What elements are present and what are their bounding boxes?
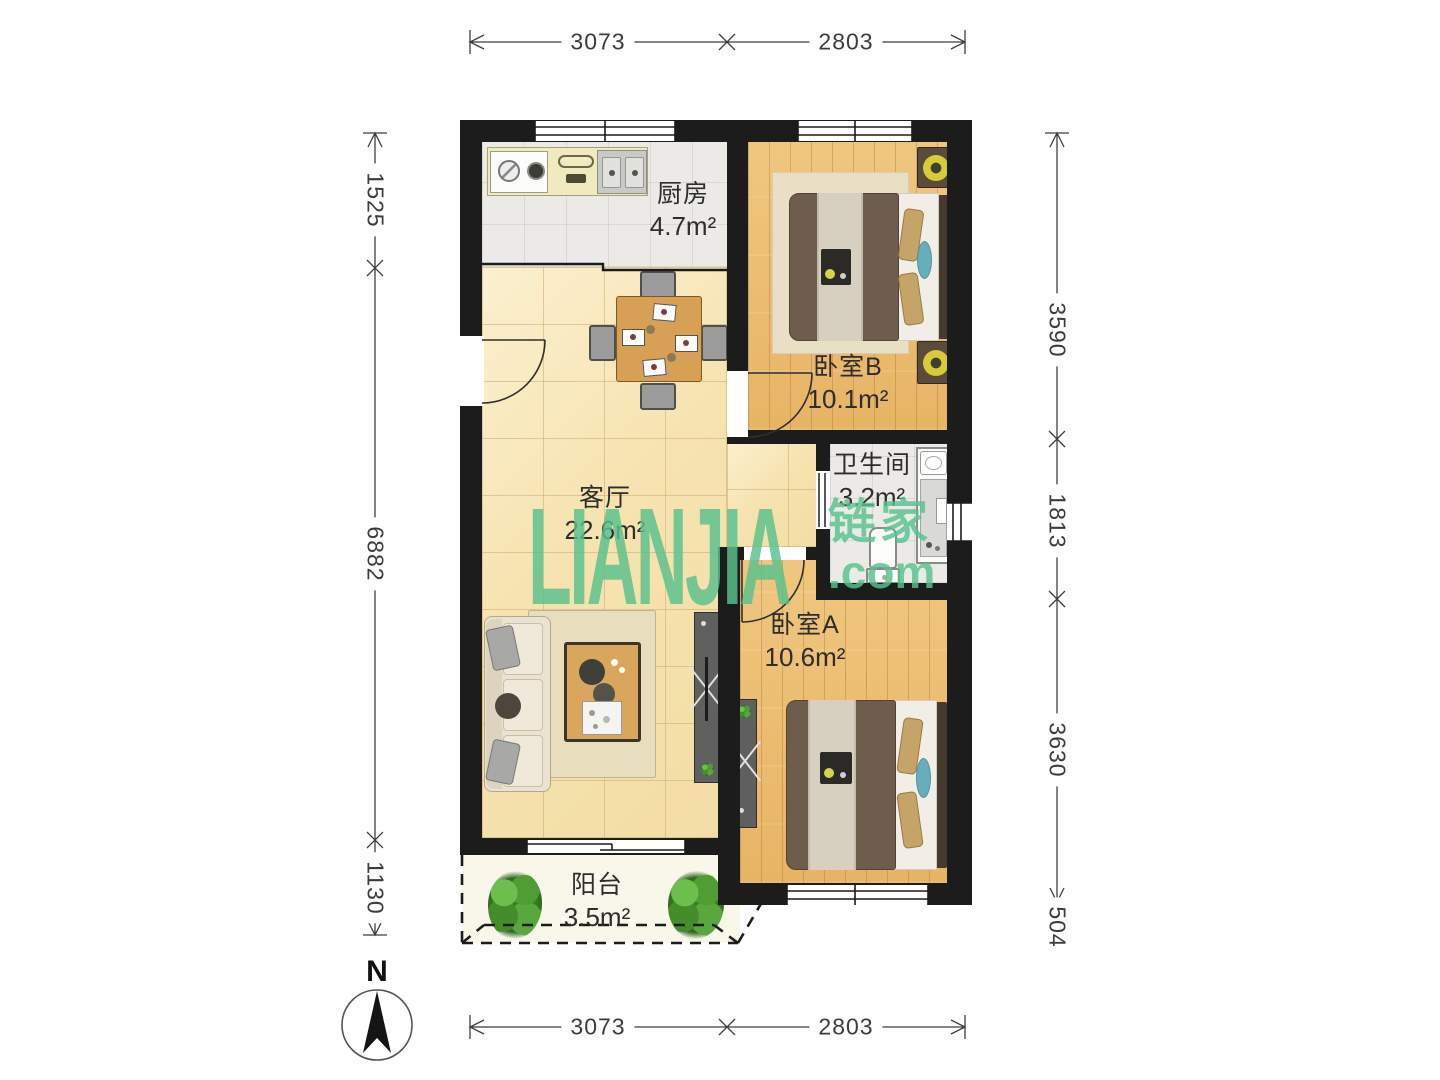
dimension-label-top: 2803 xyxy=(809,29,882,56)
room-area: 22.6m² xyxy=(565,515,646,546)
coffee-table xyxy=(564,642,641,742)
decor-tray xyxy=(582,701,622,735)
dining-chair xyxy=(589,325,616,361)
tray-icon xyxy=(579,659,605,685)
potted-plant-icon xyxy=(738,705,751,718)
place-setting xyxy=(642,358,666,377)
room-name: 卫生间 xyxy=(833,450,911,480)
room-label-livingroom: 客厅 22.6m² xyxy=(565,483,646,546)
room-label-kitchen: 厨房 4.7m² xyxy=(650,179,716,242)
floorplan-canvas: 厨房 4.7m² 卧室B 10.1m² 卫生间 3.2m² 客厅 22.6m² … xyxy=(0,0,1440,1080)
room-name: 厨房 xyxy=(650,179,716,209)
dimension-label-bottom: 3073 xyxy=(561,1014,634,1041)
shower-tray xyxy=(920,479,947,557)
dimension-label-right: 3590 xyxy=(1044,293,1071,366)
room-label-bathroom: 卫生间 3.2m² xyxy=(833,450,911,513)
room-label-bedroomB: 卧室B 10.1m² xyxy=(808,352,889,415)
room-name: 卧室A xyxy=(765,610,846,640)
room-name: 客厅 xyxy=(565,483,646,513)
round-pillow xyxy=(495,693,521,719)
toilet-tank xyxy=(866,568,900,584)
dimension-label-left: 6882 xyxy=(362,517,389,590)
toilet-bowl xyxy=(869,527,897,569)
dining-chair xyxy=(701,325,728,361)
bedroomB-bed xyxy=(789,191,949,343)
room-label-bedroomA: 卧室A 10.6m² xyxy=(765,610,846,673)
place-setting xyxy=(675,335,698,352)
tv-stand xyxy=(694,612,719,783)
toilet xyxy=(864,527,902,585)
kitchen-sink xyxy=(597,150,647,194)
bed-tray xyxy=(820,752,852,784)
place-setting xyxy=(622,329,645,346)
dimension-label-left: 1525 xyxy=(362,163,389,236)
sofa xyxy=(484,616,551,792)
room-area: 4.7m² xyxy=(650,211,716,242)
burner-icon xyxy=(527,162,545,180)
place-setting xyxy=(652,303,676,322)
potted-plant-icon xyxy=(701,763,714,776)
room-area: 10.1m² xyxy=(808,384,889,415)
wash-basin xyxy=(920,451,947,475)
dimension-label-top: 3073 xyxy=(561,29,634,56)
room-name: 阳台 xyxy=(564,870,630,900)
dining-chair xyxy=(640,383,676,410)
compass-north-label: N xyxy=(366,955,388,989)
accent-pillow xyxy=(917,241,932,279)
kitchen-counter xyxy=(487,147,648,196)
room-area: 3.2m² xyxy=(833,482,911,513)
dresser-tv-unit xyxy=(731,699,757,828)
dimension-label-right: 504 xyxy=(1044,897,1071,956)
control-panel xyxy=(566,174,586,183)
dimension-label-bottom: 2803 xyxy=(809,1014,882,1041)
sink-basin xyxy=(625,157,644,188)
bedroomA-bed xyxy=(786,696,947,874)
dining-chair xyxy=(640,271,676,298)
dining-table xyxy=(616,296,702,382)
room-label-balcony: 阳台 3.5m² xyxy=(564,870,630,933)
dimension-label-right: 3630 xyxy=(1044,713,1071,786)
dimension-label-right: 1813 xyxy=(1044,484,1071,557)
nightstand xyxy=(917,147,953,188)
compass-icon xyxy=(342,990,412,1060)
stove-cooktop xyxy=(490,151,548,193)
burner-icon xyxy=(498,160,520,182)
bed-runner xyxy=(808,700,856,870)
dimension-label-left: 1130 xyxy=(362,852,389,923)
range-hood xyxy=(558,155,594,168)
bathroom-vanity xyxy=(916,447,952,564)
sink-basin xyxy=(602,157,621,188)
room-area: 10.6m² xyxy=(765,642,846,673)
lamp-icon xyxy=(923,155,949,181)
bed-tray xyxy=(821,249,851,285)
hallway-floor xyxy=(727,444,816,547)
nightstand xyxy=(917,341,953,384)
room-name: 卧室B xyxy=(808,352,889,382)
lamp-icon xyxy=(923,350,949,376)
accent-pillow xyxy=(916,758,931,798)
room-area: 3.5m² xyxy=(564,902,630,933)
